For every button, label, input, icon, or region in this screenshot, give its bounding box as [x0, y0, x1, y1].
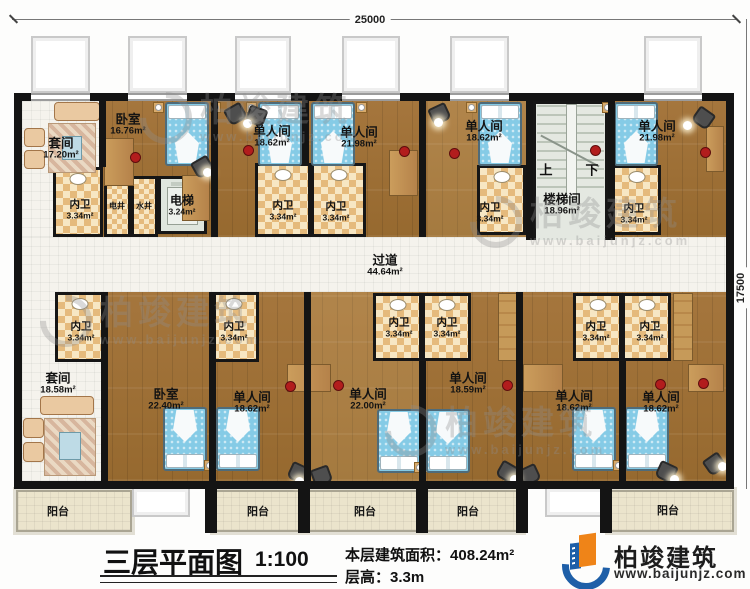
- bathroom: [477, 165, 526, 235]
- balcony-label: 阳台: [47, 506, 69, 518]
- room-label-single-bottom-4: 单人间18.62m²: [555, 390, 593, 415]
- window: [545, 487, 605, 517]
- desk: [523, 364, 563, 392]
- bathroom-label: 内卫3.34m²: [221, 321, 248, 342]
- room-label-stairwell: 楼梯间18.96m²: [543, 193, 581, 218]
- armchair: [24, 150, 45, 169]
- wall-window: [342, 93, 400, 101]
- brand-logo-icon: [562, 534, 608, 584]
- red-stool: [130, 152, 141, 163]
- interior-wall: [419, 361, 426, 481]
- room-label-single-bottom-5: 单人间18.62m²: [642, 391, 680, 416]
- coffee-table: [59, 432, 81, 460]
- room-label-single-bottom-1: 单人间18.62m²: [233, 391, 271, 416]
- stair-up-label: 上: [539, 160, 552, 179]
- interior-wall: [304, 292, 311, 481]
- ceiling-light: [434, 118, 443, 127]
- brand-site: www.baijunjz.com: [614, 566, 747, 581]
- red-stool: [449, 148, 460, 159]
- balcony-pillar: [416, 481, 428, 533]
- bed: [216, 407, 260, 471]
- ceiling-light: [683, 121, 692, 130]
- balcony-label: 阳台: [457, 506, 479, 518]
- outer-wall-right: [726, 93, 734, 489]
- interior-wall: [526, 101, 533, 240]
- interior-wall: [619, 361, 626, 481]
- ceiling-light: [243, 119, 252, 128]
- nightstand: [466, 102, 477, 113]
- balcony-pillar: [298, 481, 310, 533]
- interior-wall: [419, 101, 426, 237]
- electric-shaft-label: 电井: [109, 203, 125, 212]
- desk: [104, 138, 134, 186]
- bathroom-label: 内卫3.34m²: [67, 199, 94, 220]
- sofa: [40, 396, 94, 415]
- outer-wall-left: [14, 93, 22, 489]
- armchair: [24, 128, 45, 147]
- window: [128, 36, 187, 93]
- room-label-single-top-1: 单人间18.62m²: [253, 125, 291, 150]
- bed: [572, 407, 616, 471]
- interior-wall: [302, 101, 309, 163]
- wall-window: [31, 93, 90, 101]
- room-label-single-bottom-2: 单人间22.00m²: [349, 388, 387, 413]
- balcony-label: 阳台: [354, 506, 376, 518]
- red-stool: [399, 146, 410, 157]
- balcony-label: 阳台: [247, 506, 269, 518]
- window: [31, 36, 90, 93]
- bathroom-label: 内卫3.34m²: [323, 201, 350, 222]
- room-label-bedroom-top: 卧室16.76m²: [110, 113, 145, 138]
- red-stool: [502, 380, 513, 391]
- interior-wall: [101, 292, 108, 481]
- balcony: [16, 490, 132, 532]
- red-stool: [333, 380, 344, 391]
- room-label-single-top-3: 单人间18.62m²: [465, 120, 503, 145]
- red-stool: [590, 145, 601, 156]
- bathroom-label: 内卫3.34m²: [583, 321, 610, 342]
- red-stool: [285, 381, 296, 392]
- right-dimension-label: 17500: [735, 268, 747, 309]
- room-label-suite-bottom: 套间18.58m²: [40, 372, 75, 397]
- title-underline: [100, 575, 337, 583]
- armchair: [23, 442, 44, 462]
- bathroom-label: 内卫3.34m²: [270, 200, 297, 221]
- sofa: [54, 102, 100, 121]
- red-stool: [698, 378, 709, 389]
- red-stool: [655, 379, 666, 390]
- room-label-suite-top: 套间17.20m²: [43, 137, 78, 162]
- interior-wall: [209, 292, 216, 481]
- wall-window: [128, 93, 187, 101]
- window: [644, 36, 702, 93]
- interior-wall: [608, 101, 615, 240]
- bathroom-label: 内卫3.34m²: [637, 321, 664, 342]
- corridor-label: 过道44.64m²: [367, 254, 402, 279]
- elevator-label: 电梯3.24m²: [169, 195, 196, 218]
- balcony-pillar: [516, 481, 528, 533]
- window: [235, 36, 291, 93]
- room-label-single-top-2: 单人间21.98m²: [340, 126, 378, 151]
- closet: [498, 293, 518, 361]
- bathroom-label: 内卫3.34m²: [68, 321, 95, 342]
- floor-area-text: 本层建筑面积：408.24m²: [345, 544, 514, 565]
- closet: [673, 293, 693, 361]
- wall-window: [644, 93, 702, 101]
- floor-plan-canvas: 25000 17500 上 下: [0, 0, 750, 589]
- plan-scale: 1:100: [255, 548, 309, 572]
- bathroom-label: 内卫3.34m²: [621, 203, 648, 224]
- balcony-pillar: [205, 481, 217, 533]
- armchair: [23, 418, 44, 438]
- bathroom-label: 内卫3.34m²: [477, 202, 504, 223]
- window: [450, 36, 509, 93]
- nightstand: [153, 102, 164, 113]
- wall-window: [235, 93, 291, 101]
- room-label-single-bottom-3: 单人间18.59m²: [449, 372, 487, 397]
- bed: [426, 409, 470, 473]
- top-dimension-label: 25000: [350, 14, 391, 26]
- window: [132, 487, 190, 517]
- interior-wall: [516, 292, 523, 481]
- nightstand: [356, 102, 367, 113]
- bathroom-label: 内卫3.34m²: [386, 317, 413, 338]
- interior-wall: [211, 101, 218, 237]
- bathroom-label: 内卫3.34m²: [434, 317, 461, 338]
- balcony-pillar: [600, 481, 612, 533]
- red-stool: [700, 147, 711, 158]
- interior-wall: [99, 101, 106, 167]
- window: [342, 36, 400, 93]
- floor-height-text: 层高：3.3m: [345, 566, 424, 587]
- stair-down-label: 下: [585, 160, 598, 179]
- room-label-bedroom-bottom: 卧室22.40m²: [148, 388, 183, 413]
- outer-wall-bottom: [14, 481, 734, 489]
- bed: [163, 407, 207, 471]
- water-shaft-label: 水井: [136, 203, 152, 212]
- balcony-label: 阳台: [657, 505, 679, 517]
- wall-window: [450, 93, 509, 101]
- room-label-single-top-4: 单人间21.98m²: [638, 120, 676, 145]
- right-dimension-line: [746, 19, 747, 489]
